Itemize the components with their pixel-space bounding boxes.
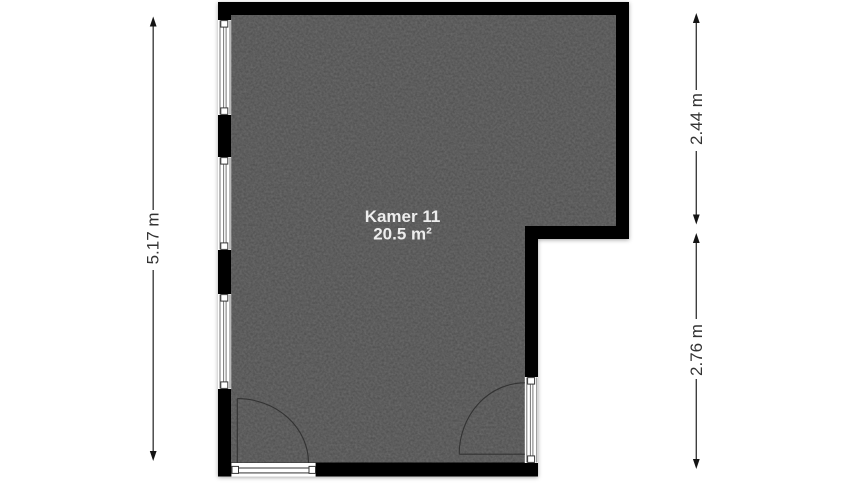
svg-text:Kamer 11: Kamer 11: [365, 207, 441, 226]
svg-text:20.5 m²: 20.5 m²: [373, 225, 432, 244]
svg-text:5.17 m: 5.17 m: [144, 212, 163, 264]
svg-text:2.44 m: 2.44 m: [687, 93, 706, 145]
svg-text:2.76 m: 2.76 m: [687, 324, 706, 376]
